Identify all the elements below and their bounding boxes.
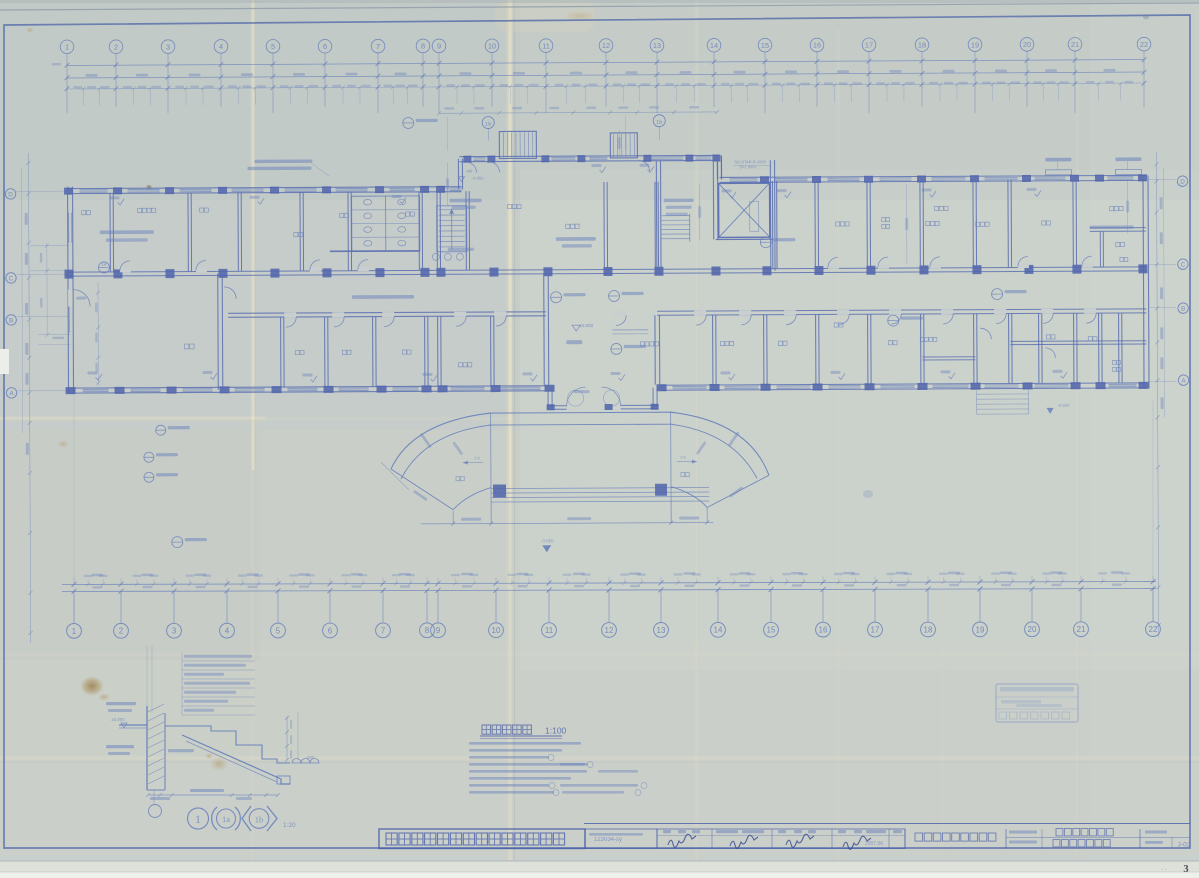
svg-text:2007.06: 2007.06 — [865, 841, 883, 847]
svg-text:±0.000: ±0.000 — [111, 717, 125, 722]
svg-text:C: C — [1181, 262, 1186, 269]
svg-text:1b: 1b — [656, 120, 662, 126]
svg-text:17: 17 — [871, 625, 880, 634]
svg-text:13: 13 — [657, 626, 666, 635]
svg-text:14: 14 — [714, 626, 723, 635]
svg-text:123034-sy: 123034-sy — [594, 837, 622, 843]
svg-text:J-02: J-02 — [1178, 842, 1191, 849]
svg-text:3: 3 — [1183, 864, 1188, 875]
svg-text:18: 18 — [924, 625, 933, 634]
svg-text:11: 11 — [542, 41, 550, 50]
svg-text:C: C — [9, 275, 14, 282]
svg-text:-0.450: -0.450 — [472, 176, 485, 181]
svg-text:2: 2 — [114, 42, 118, 51]
svg-text:15: 15 — [767, 626, 776, 635]
svg-text:21: 21 — [1077, 625, 1086, 634]
svg-text:22: 22 — [1149, 625, 1158, 634]
svg-text:6: 6 — [328, 626, 333, 635]
svg-text:9: 9 — [436, 626, 441, 635]
svg-text:1: 1 — [65, 43, 69, 52]
svg-text:1b: 1b — [255, 815, 264, 825]
svg-text:±0.000: ±0.000 — [579, 323, 593, 328]
svg-text:1:9: 1:9 — [680, 455, 686, 460]
svg-text:M9: M9 — [467, 169, 474, 174]
svg-text:21: 21 — [1071, 40, 1079, 49]
svg-text:14: 14 — [710, 41, 718, 50]
svg-text:22: 22 — [1140, 40, 1148, 49]
svg-text:12: 12 — [605, 626, 614, 635]
svg-text:15: 15 — [761, 41, 769, 50]
svg-text:5: 5 — [271, 42, 275, 51]
svg-text:19: 19 — [971, 40, 979, 49]
svg-text:7: 7 — [376, 42, 380, 51]
svg-text:16: 16 — [819, 626, 828, 635]
svg-text:4: 4 — [225, 627, 230, 636]
svg-text:12: 12 — [602, 41, 610, 50]
svg-text:20: 20 — [1028, 625, 1037, 634]
svg-text:8: 8 — [421, 42, 425, 51]
svg-text:18: 18 — [918, 40, 926, 49]
svg-text:3: 3 — [172, 627, 177, 636]
svg-text:10: 10 — [488, 42, 496, 51]
svg-text:1a: 1a — [222, 814, 230, 824]
svg-text:1:100: 1:100 — [545, 726, 567, 736]
svg-text:7: 7 — [381, 626, 386, 635]
svg-text:1: 1 — [72, 627, 77, 636]
svg-text:13: 13 — [653, 41, 661, 50]
svg-text:9: 9 — [437, 42, 441, 51]
svg-text:16: 16 — [813, 41, 821, 50]
svg-text:2: 2 — [119, 627, 124, 636]
svg-text:17: 17 — [865, 41, 873, 50]
svg-text:1: 1 — [195, 814, 201, 826]
svg-text:B: B — [1181, 306, 1185, 313]
svg-text:8: 8 — [425, 626, 430, 635]
svg-text:. .: . . — [1161, 865, 1167, 872]
svg-text:-0.020: -0.020 — [541, 538, 554, 543]
svg-text:10: 10 — [492, 626, 501, 635]
svg-text:1b: 1b — [485, 122, 491, 128]
svg-text:-600: -600 — [306, 755, 315, 760]
svg-text:6: 6 — [323, 42, 327, 51]
svg-text:B: B — [9, 317, 13, 324]
svg-text:1a: 1a — [101, 261, 107, 266]
svg-text:-0.600: -0.600 — [1058, 403, 1071, 408]
svg-text:5: 5 — [276, 626, 281, 635]
svg-text:11: 11 — [545, 626, 554, 635]
svg-text:4: 4 — [219, 42, 223, 51]
svg-text:1:20: 1:20 — [283, 822, 296, 829]
svg-text:D: D — [1180, 179, 1185, 186]
svg-text:20: 20 — [1023, 40, 1031, 49]
svg-text:1:9: 1:9 — [474, 456, 480, 461]
svg-text:3: 3 — [166, 42, 170, 51]
svg-text:D: D — [8, 191, 13, 198]
svg-text:19: 19 — [976, 625, 985, 634]
